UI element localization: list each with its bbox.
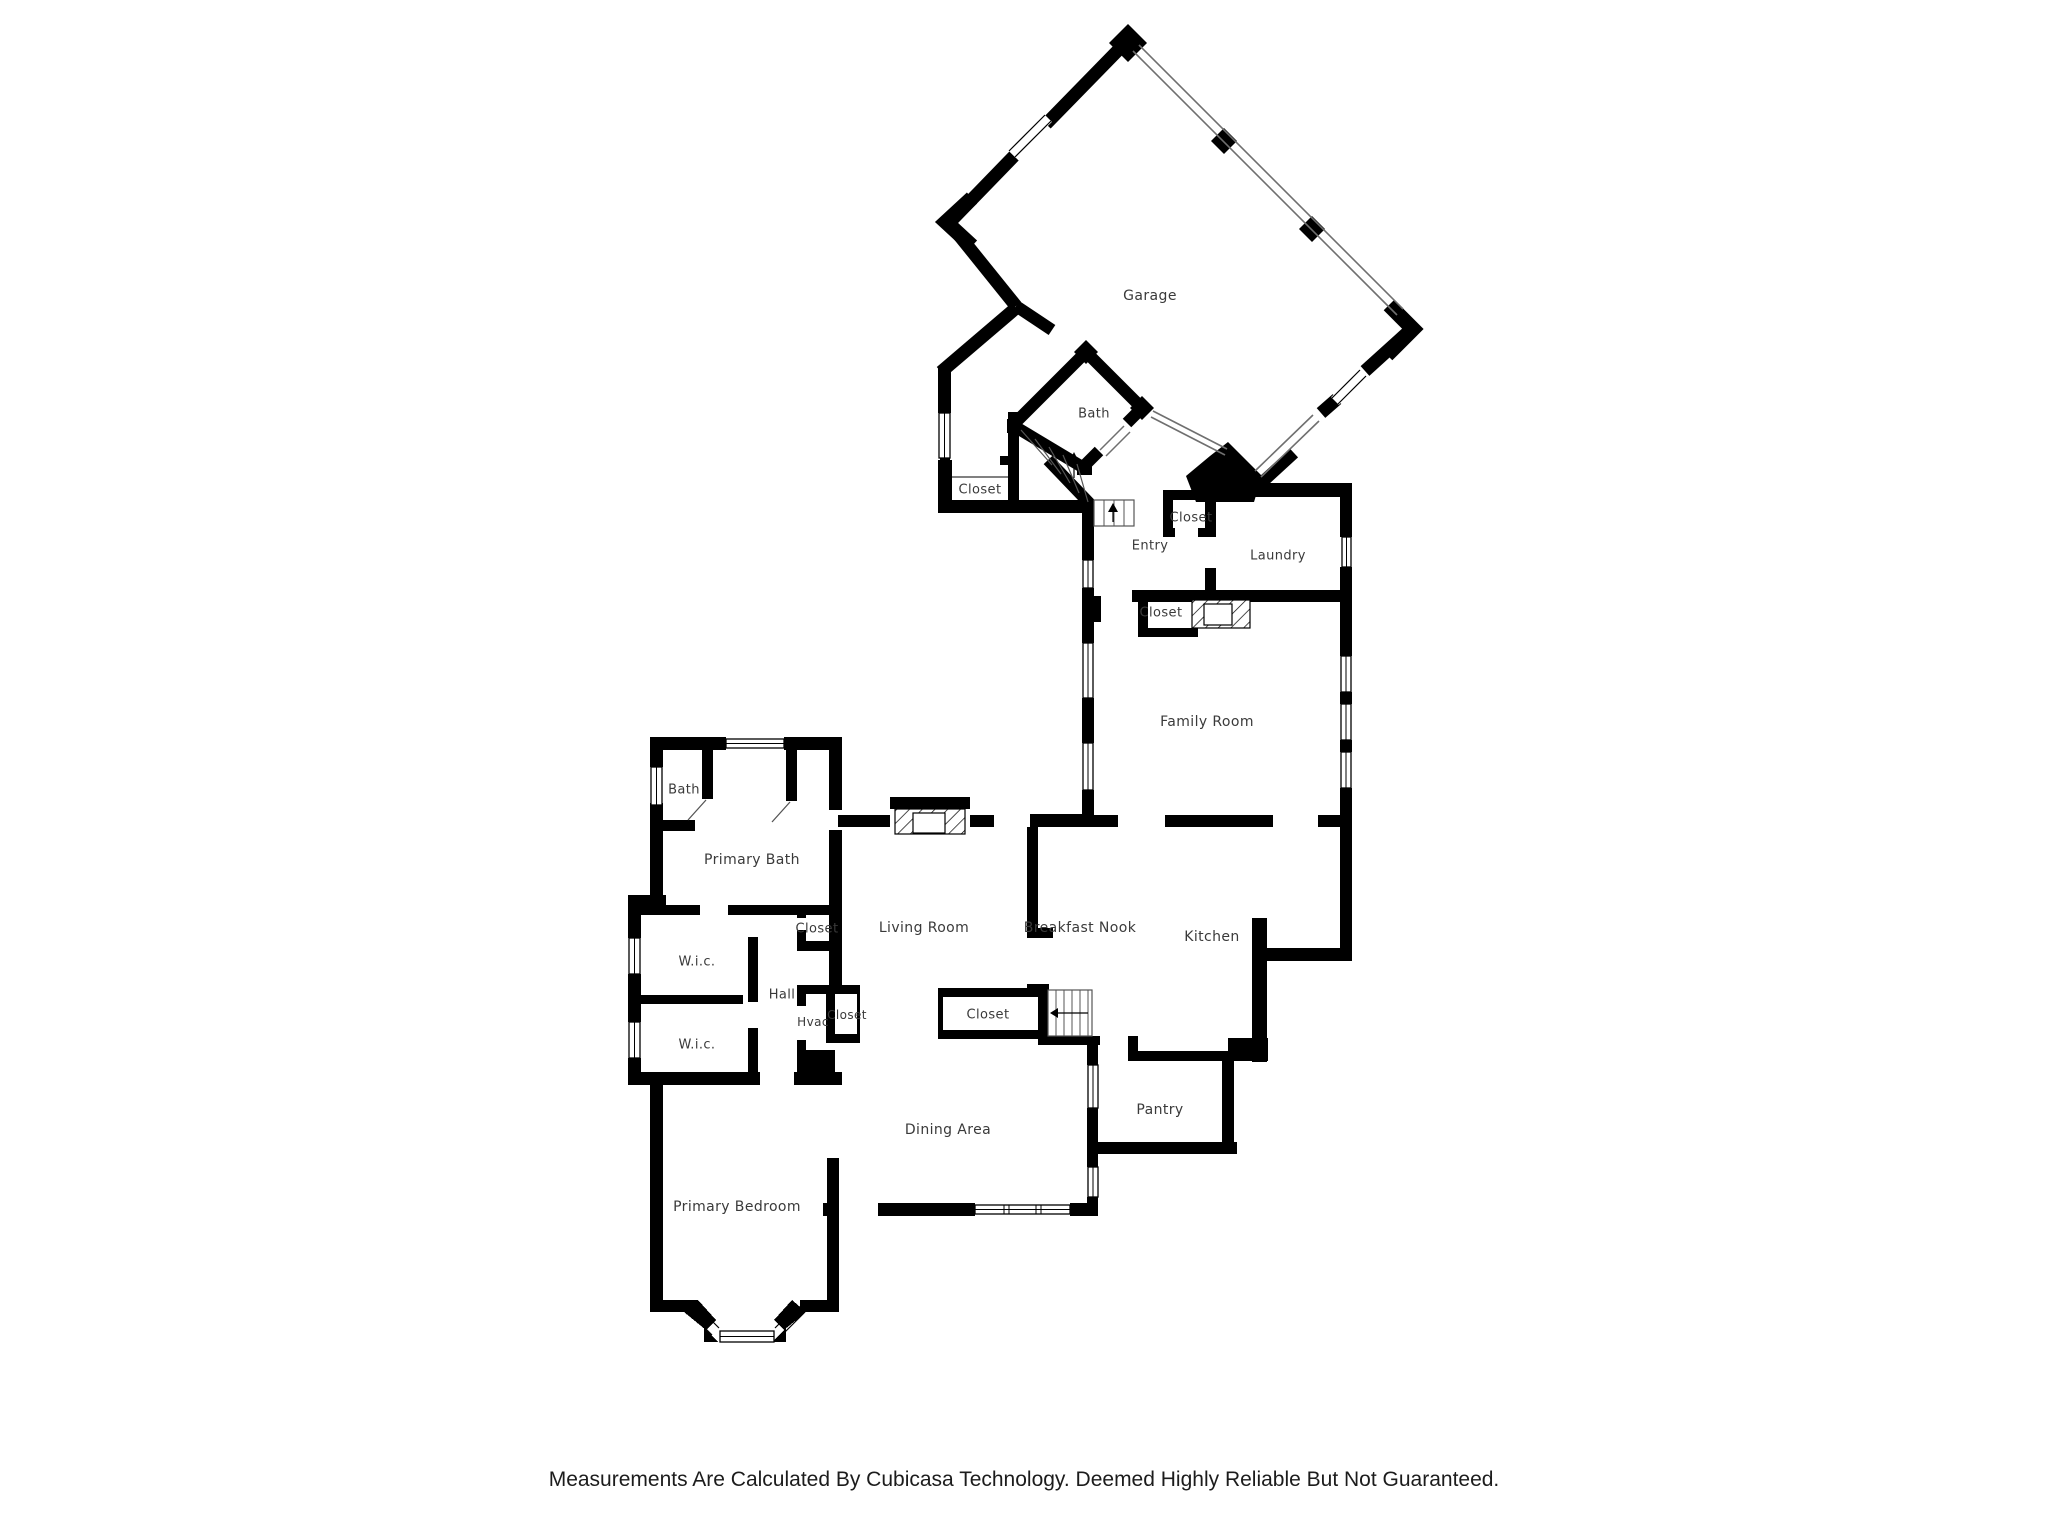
room-label-hall: Hall — [769, 989, 796, 1002]
room-label-pantry: Pantry — [1136, 1103, 1183, 1117]
room-label-closet-stairs: Closet — [959, 484, 1002, 497]
room-label-closet-primary: Closet — [796, 923, 839, 936]
room-label-dining-area: Dining Area — [905, 1123, 991, 1137]
room-label-laundry: Laundry — [1250, 550, 1306, 563]
disclaimer-label: Measurements Are Calculated By Cubicasa … — [549, 1468, 1500, 1491]
room-label-closet-entry: Closet — [1170, 512, 1213, 525]
room-label-kitchen: Kitchen — [1184, 930, 1239, 944]
room-label-breakfast-nook: Breakfast Nook — [1024, 921, 1136, 935]
room-label-entry: Entry — [1132, 540, 1169, 553]
garage-bath-walls — [1007, 340, 1154, 508]
garage-glass-wall — [1133, 45, 1403, 315]
room-label-living-room: Living Room — [879, 921, 969, 935]
room-label-bath-garage: Bath — [1078, 408, 1110, 421]
closet-rod-icon — [1192, 600, 1250, 628]
room-label-closet-coat: Closet — [1140, 607, 1183, 620]
garage-corner-blocks — [1109, 24, 1325, 502]
room-label-garage: Garage — [1123, 289, 1177, 303]
room-label-closet-hall: Closet — [827, 1009, 867, 1021]
room-label-bath: Bath — [668, 784, 700, 797]
fireplace-icon — [895, 809, 965, 834]
door-swings — [688, 800, 790, 822]
room-label-primary-bedroom: Primary Bedroom — [673, 1200, 801, 1214]
floorplan: GarageBathClosetClosetEntryLaundryCloset… — [0, 0, 2048, 1536]
room-label-hvac: Hvac — [797, 1016, 829, 1028]
room-label-primary-bath: Primary Bath — [704, 853, 800, 867]
windows — [629, 115, 1366, 1342]
room-label-family-room: Family Room — [1160, 715, 1254, 729]
floorplan-drawing — [0, 0, 2048, 1536]
basement-staircase — [1048, 990, 1092, 1036]
room-label-wic-upper: W.i.c. — [679, 956, 716, 969]
room-label-wic-lower: W.i.c. — [679, 1039, 716, 1052]
disclaimer-text: Measurements Are Calculated By Cubicasa … — [0, 1468, 2048, 1492]
room-label-closet-center: Closet — [967, 1009, 1010, 1022]
